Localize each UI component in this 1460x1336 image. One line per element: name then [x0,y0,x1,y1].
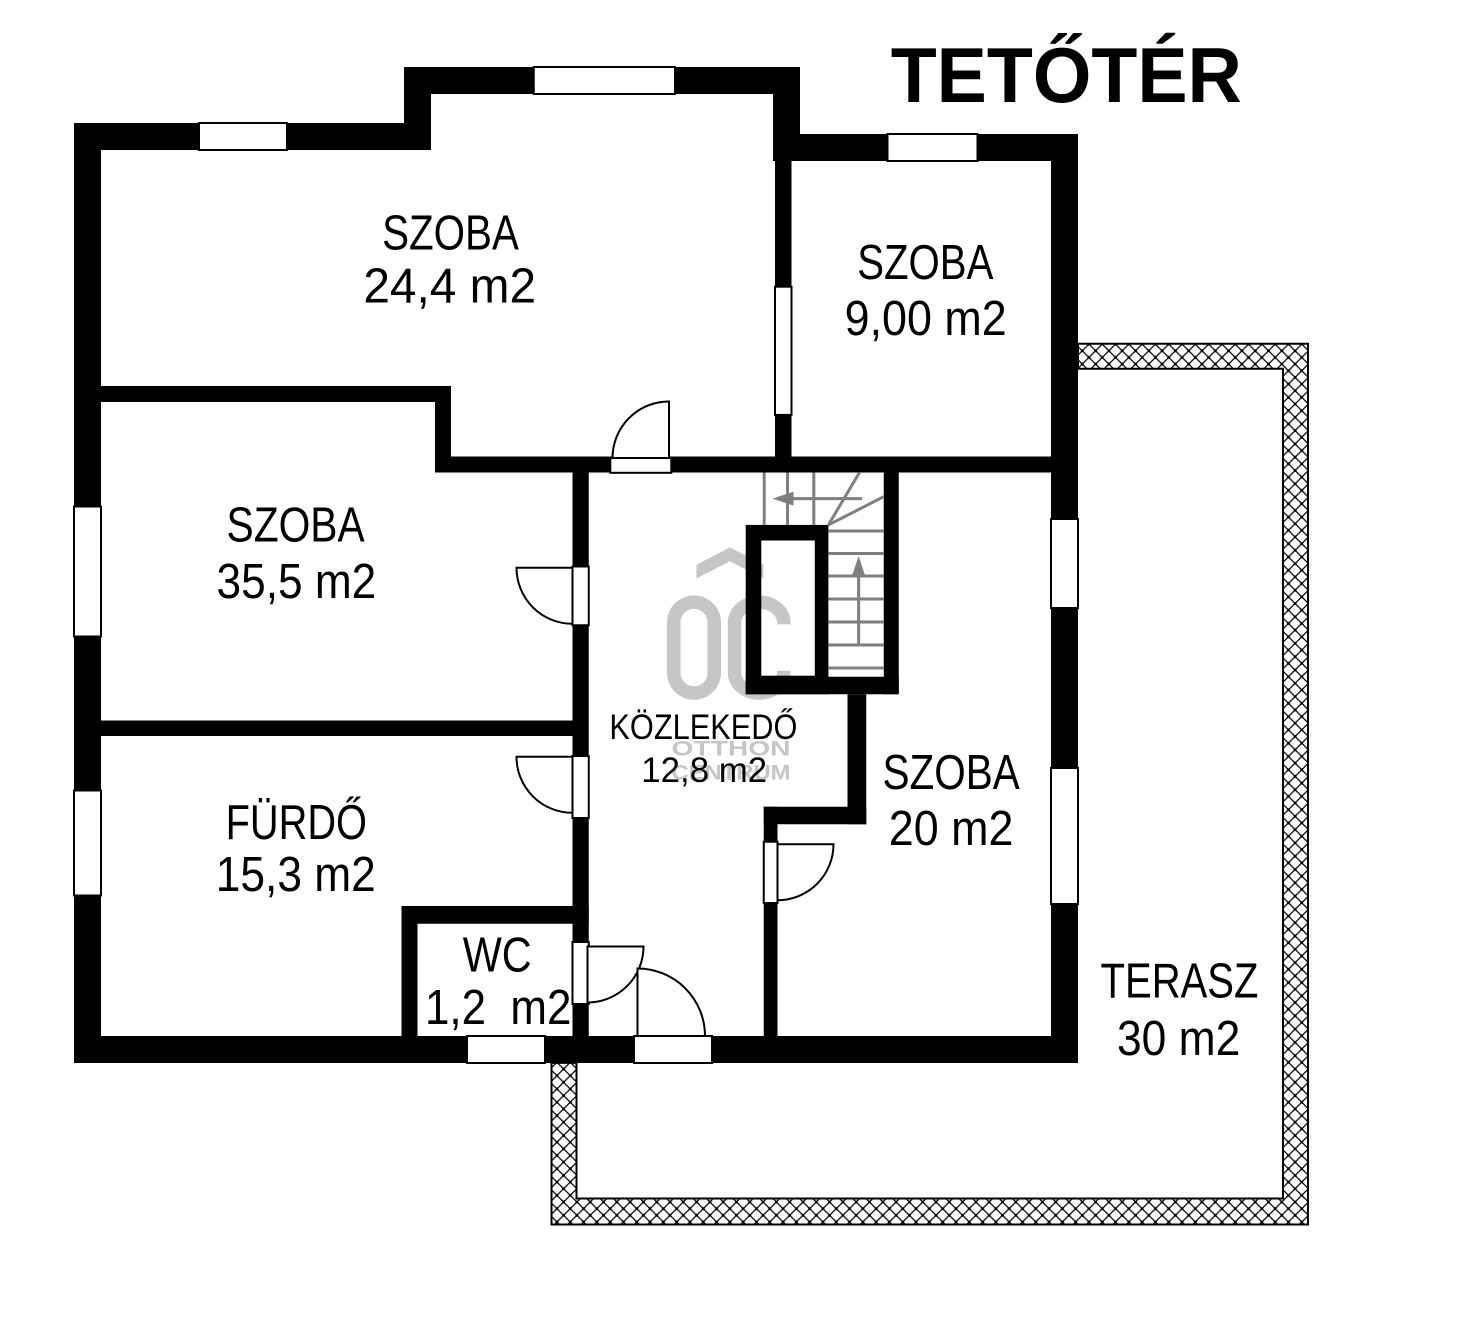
svg-text:OTTHON: OTTHON [672,738,791,761]
svg-text:TETŐTÉR: TETŐTÉR [891,31,1242,119]
svg-text:WC: WC [463,929,532,983]
svg-text:FÜRDŐ: FÜRDŐ [226,796,367,850]
svg-text:SZOBA: SZOBA [382,207,519,261]
svg-text:20 m2: 20 m2 [889,802,1014,856]
svg-text:SZOBA: SZOBA [227,499,365,553]
svg-text:CENTRUM: CENTRUM [672,762,791,785]
svg-text:24,4 m2: 24,4 m2 [363,260,536,314]
svg-text:15,3 m2: 15,3 m2 [216,848,376,902]
svg-text:SZOBA: SZOBA [857,236,993,290]
svg-text:1,2 m2: 1,2 m2 [425,981,571,1035]
svg-text:SZOBA: SZOBA [883,746,1020,800]
svg-text:TERASZ: TERASZ [1101,955,1259,1009]
svg-text:35,5 m2: 35,5 m2 [217,555,377,609]
svg-text:30 m2: 30 m2 [1117,1012,1240,1066]
svg-text:9,00 m2: 9,00 m2 [845,292,1007,346]
